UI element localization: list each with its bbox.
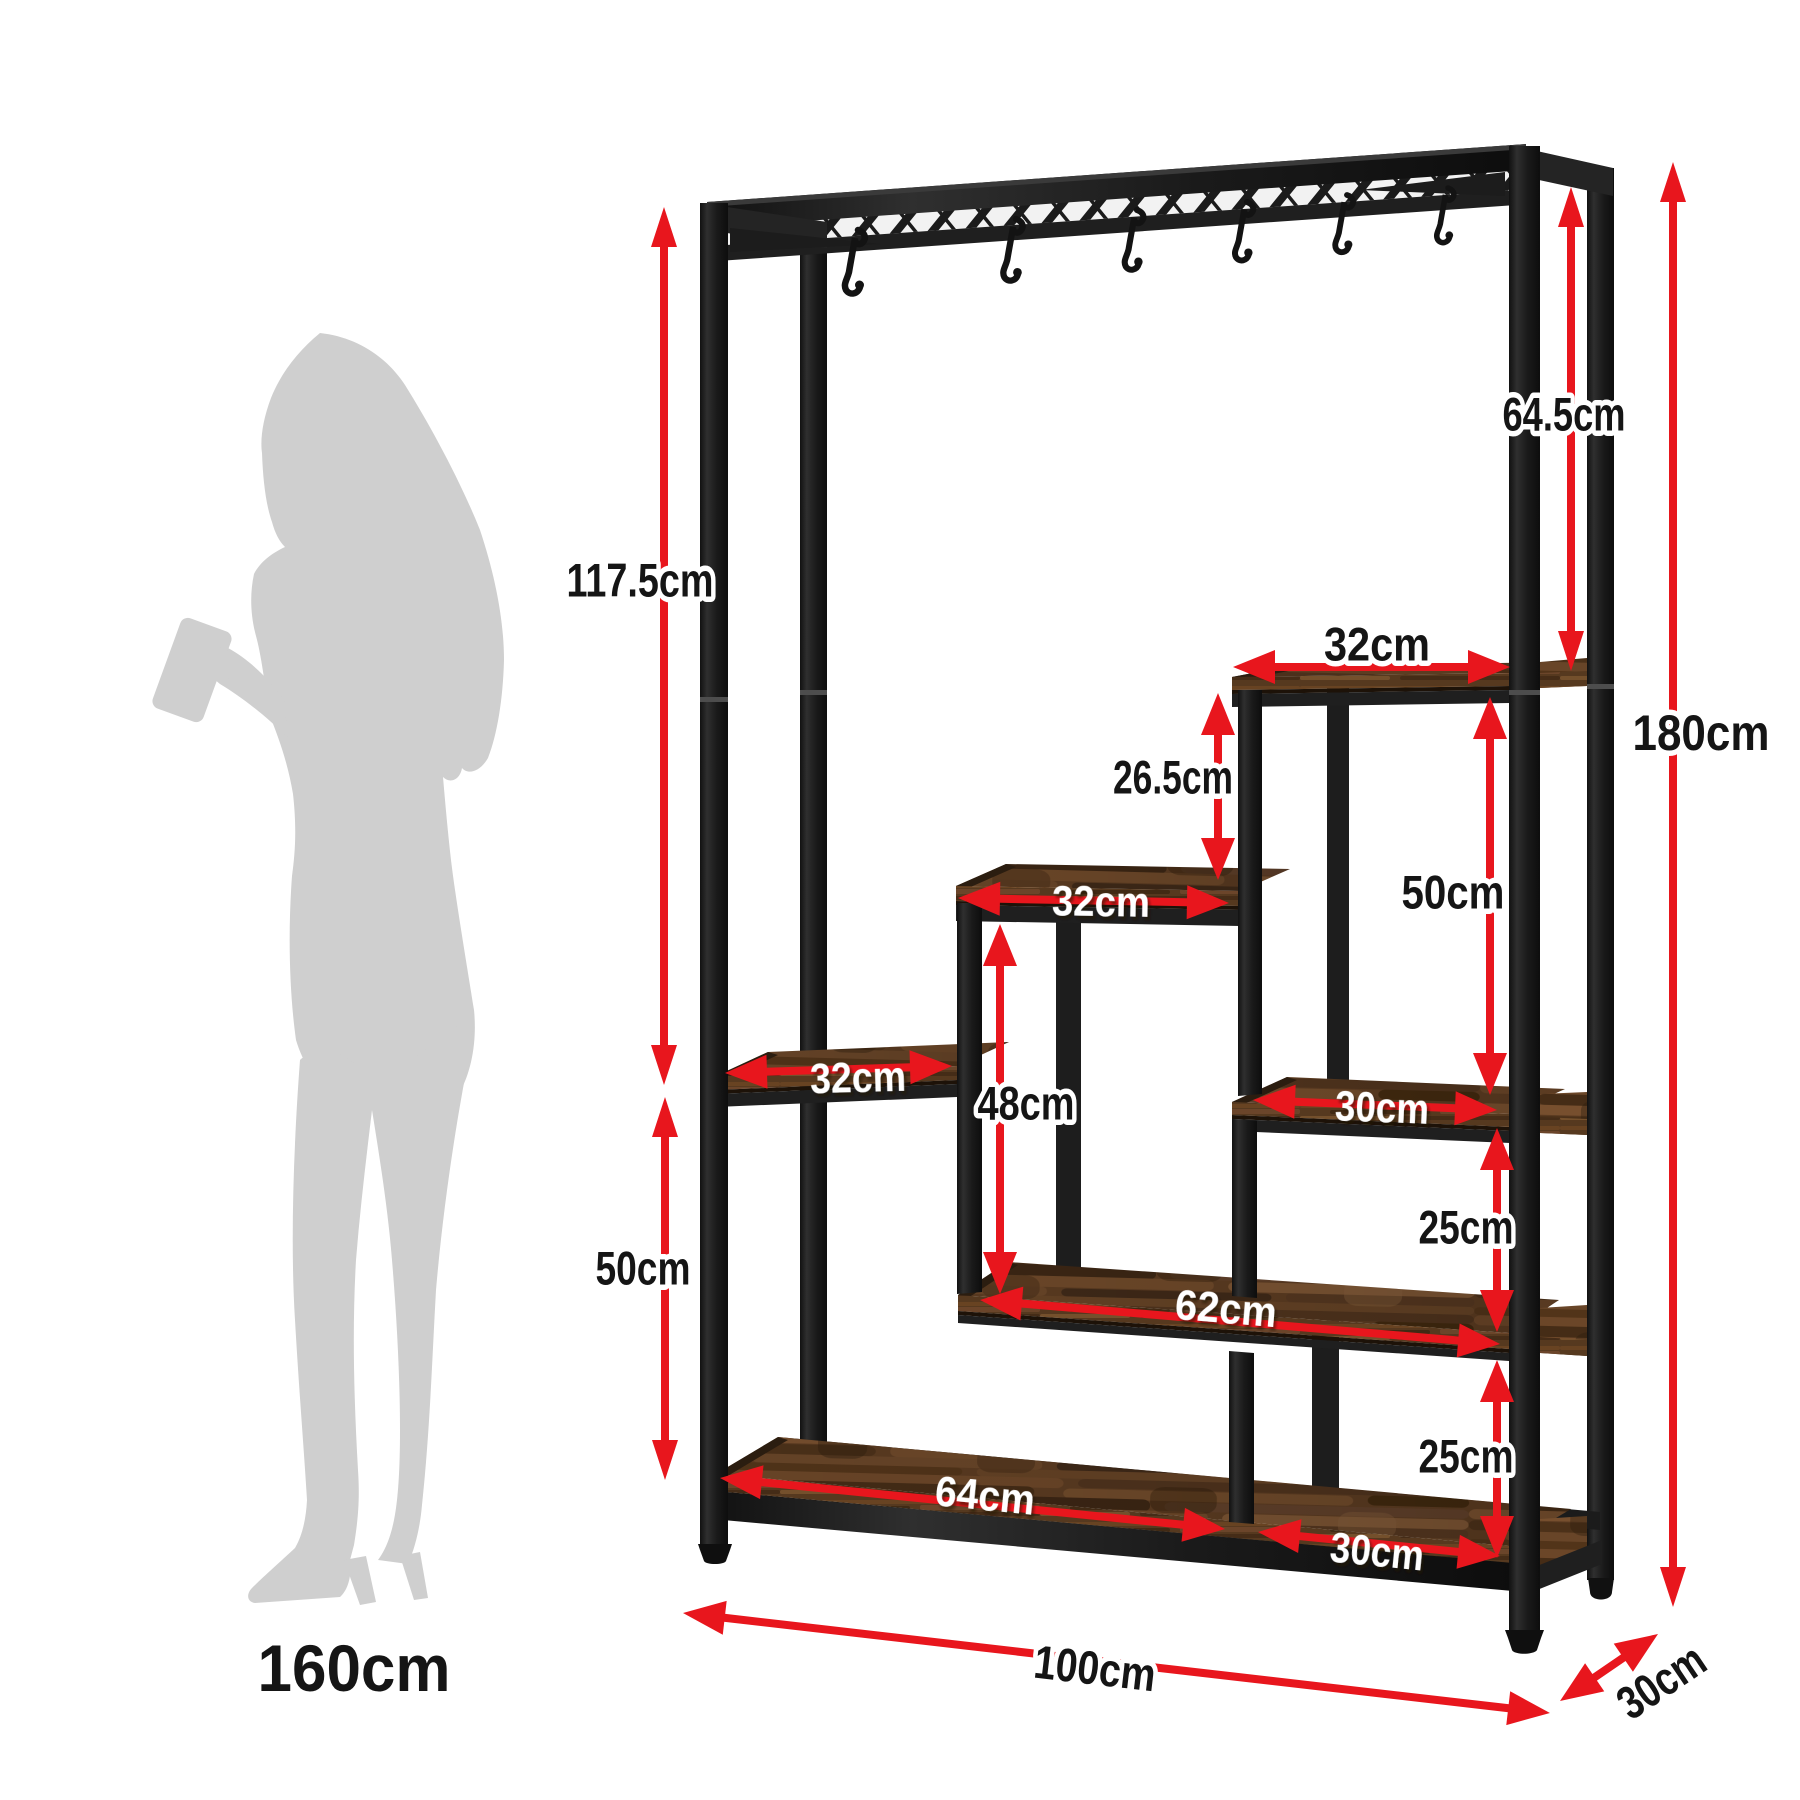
svg-text:32cm: 32cm [809, 1053, 906, 1103]
svg-text:30cm: 30cm [1328, 1523, 1426, 1580]
svg-text:64cm: 64cm [933, 1467, 1037, 1525]
svg-text:32cm: 32cm [1052, 877, 1151, 927]
svg-text:32cm: 32cm [1324, 618, 1430, 671]
svg-text:50cm: 50cm [1402, 866, 1505, 919]
svg-text:180cm: 180cm [1633, 705, 1770, 761]
svg-text:25cm: 25cm [1419, 1201, 1514, 1254]
svg-text:48cm: 48cm [978, 1077, 1075, 1130]
svg-text:117.5cm: 117.5cm [567, 554, 714, 607]
svg-text:160cm: 160cm [258, 1631, 451, 1705]
svg-text:25cm: 25cm [1419, 1430, 1514, 1483]
svg-text:62cm: 62cm [1173, 1281, 1279, 1337]
svg-text:26.5cm: 26.5cm [1113, 751, 1233, 804]
svg-text:30cm: 30cm [1334, 1082, 1430, 1134]
svg-text:50cm: 50cm [596, 1242, 691, 1295]
svg-text:64.5cm: 64.5cm [1503, 388, 1626, 441]
